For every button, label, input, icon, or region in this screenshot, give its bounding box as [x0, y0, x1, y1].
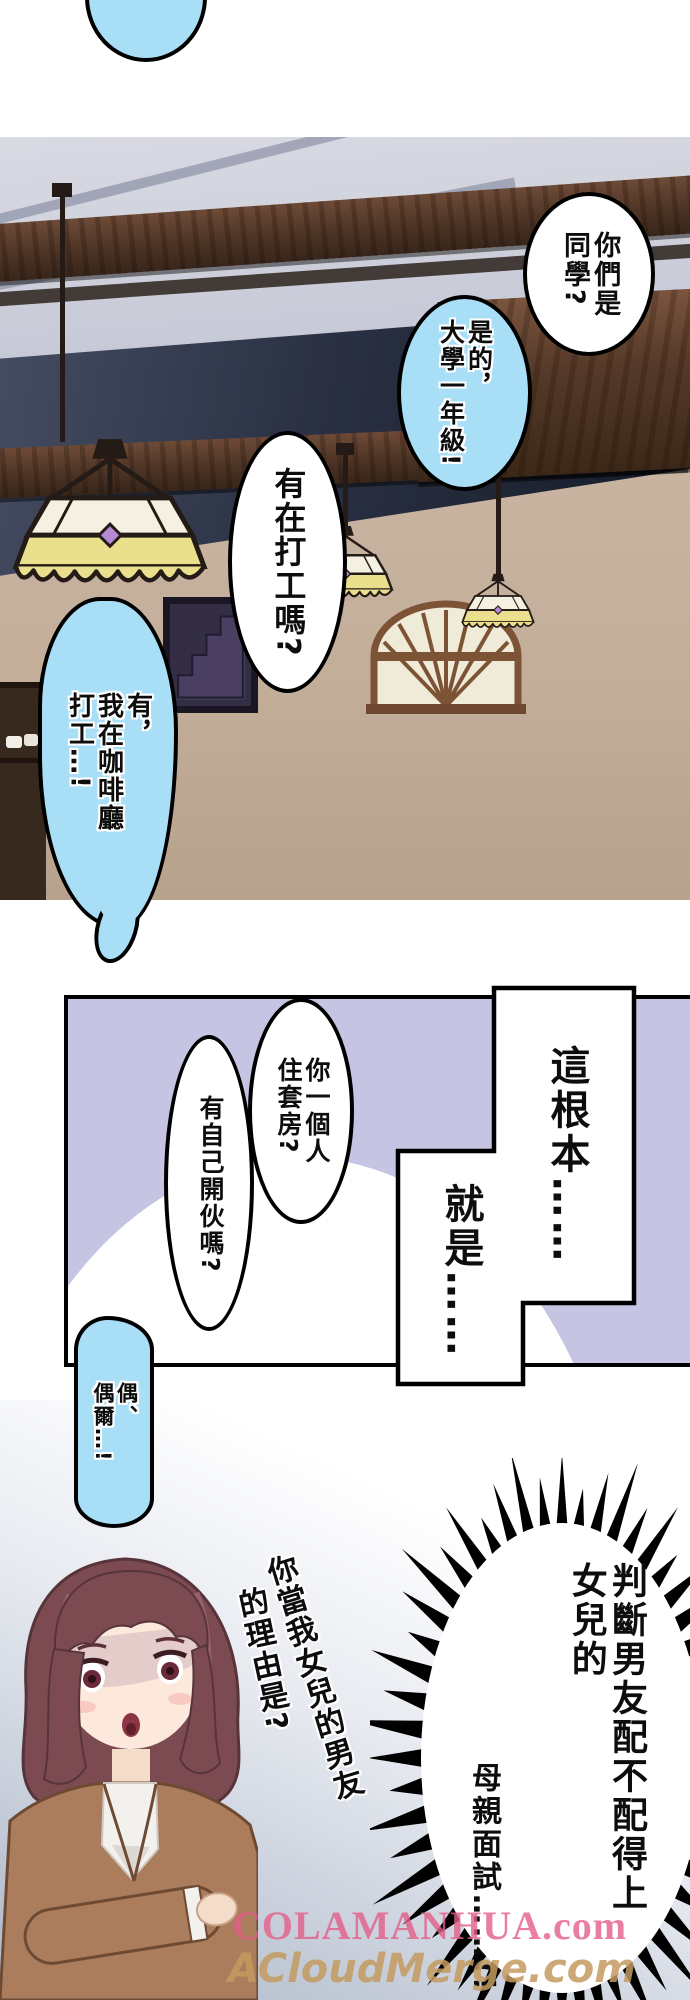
lamp-rod — [343, 451, 348, 529]
speech-bubble-sometimes: 偶、 偶爾…! — [74, 1316, 154, 1528]
lamp-rod — [496, 469, 501, 575]
bubble-text: 你們是 同學? — [559, 231, 619, 318]
bubble-text: 偶、 偶爾…! — [90, 1382, 137, 1463]
woman-illustration — [0, 1553, 258, 2000]
watermark-merge: ACloudMerge.com — [228, 1946, 636, 1992]
comic-page: 你們是 同學? 是的， 大學一年級! 有在打工嗎? 有， 我在咖啡廳 打工…! … — [0, 0, 690, 2000]
speech-bubble-cafe-tail-join — [98, 872, 144, 924]
speech-bubble-parttime: 有在打工嗎? — [228, 431, 347, 693]
cup — [6, 736, 22, 748]
caption-basically: 就是…… — [404, 1168, 516, 1373]
lamp-rod — [60, 192, 65, 442]
cup — [24, 734, 38, 746]
stained-glass-lamp-small — [461, 573, 535, 636]
speech-bubble-yes-freshman: 是的， 大學一年級! — [397, 295, 532, 491]
bubble-text: 有， 我在咖啡廳 打工…! — [64, 692, 151, 832]
stained-glass-lamp-large — [12, 437, 208, 604]
bubble-text: 有在打工嗎? — [270, 467, 306, 658]
bubble-text-cook: 有自己開伙嗎? — [168, 1048, 252, 1320]
bubble-previous-tail — [85, 0, 207, 62]
caption-this-is: 這根本…… — [506, 1012, 626, 1297]
bubble-text: 是的， 大學一年級! — [437, 319, 493, 467]
bubble-text-live-alone: 你一個人 住套房? — [252, 1008, 352, 1214]
shout-text-main: 判斷男友配不配得上 女兒的 — [514, 1562, 646, 1957]
speech-bubble-classmates: 你們是 同學? — [523, 192, 655, 356]
watermark-site: COLAMANHUA.com — [232, 1902, 627, 1949]
